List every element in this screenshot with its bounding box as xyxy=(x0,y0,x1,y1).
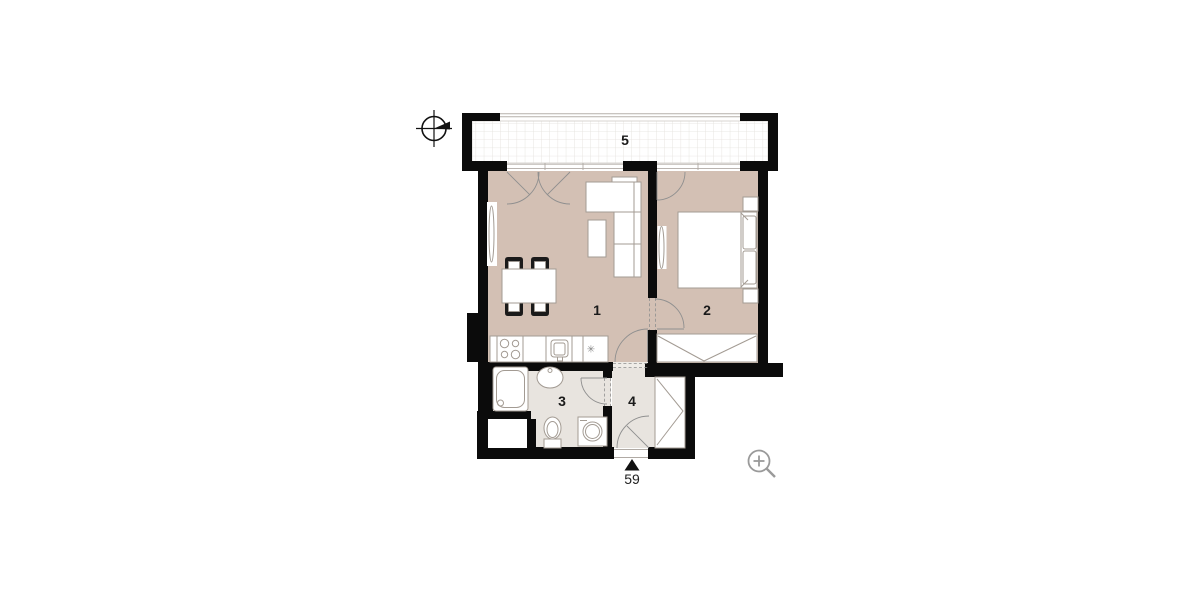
kitchen-appliance-symbol: ✳ xyxy=(587,345,595,356)
wall-segment xyxy=(527,419,536,448)
floor-plan-canvas: ✳ xyxy=(0,0,1200,600)
balcony-tile-grid xyxy=(472,121,768,163)
dining-table xyxy=(502,269,556,303)
wall-segment xyxy=(603,371,612,378)
entry-threshold xyxy=(614,448,648,459)
room-label-bedroom: 2 xyxy=(703,302,711,318)
unit-number: 59 xyxy=(624,471,640,487)
wall-segment xyxy=(648,171,657,298)
hallway-threshold xyxy=(613,362,648,369)
wall-segment xyxy=(758,166,768,363)
toilet xyxy=(544,417,561,439)
toilet-tank xyxy=(544,439,561,448)
nightstand xyxy=(743,289,758,303)
wall-segment xyxy=(645,363,783,377)
sofa-cushion xyxy=(612,177,637,182)
room-label-bathroom: 3 xyxy=(558,393,566,409)
wall-segment xyxy=(462,113,500,121)
radiator xyxy=(659,227,664,269)
pillow xyxy=(743,251,756,284)
dining-chair xyxy=(505,302,523,316)
hallway-closet xyxy=(655,377,685,448)
wall-segment xyxy=(685,377,695,459)
entrance-marker: 59 xyxy=(624,459,640,487)
nightstand xyxy=(743,197,758,211)
radiator xyxy=(489,206,494,262)
shaft-niche xyxy=(488,419,527,448)
pillow xyxy=(743,216,756,249)
zoom-in-icon[interactable] xyxy=(749,451,776,478)
coffee-table xyxy=(588,220,606,257)
room-label-living: 1 xyxy=(593,302,601,318)
entrance-arrow-icon xyxy=(625,459,640,471)
compass-north-icon xyxy=(416,110,452,147)
wall-segment xyxy=(477,447,614,459)
wall-segment xyxy=(481,411,531,419)
room-label-hallway: 4 xyxy=(628,393,636,409)
room-label-balcony: 5 xyxy=(621,132,629,148)
wall-segment xyxy=(462,161,507,171)
wall-segment xyxy=(623,161,657,171)
kitchen: ✳ xyxy=(490,336,608,362)
wall-segment xyxy=(478,362,493,419)
washing-machine xyxy=(578,417,607,446)
balcony xyxy=(472,114,768,163)
washbasin xyxy=(537,367,563,388)
hall-wardrobe xyxy=(655,377,685,448)
floor-plan-page: ✳ xyxy=(0,0,1200,600)
dining-chair xyxy=(531,302,549,316)
wall-segment xyxy=(467,313,481,362)
wardrobe xyxy=(657,334,757,362)
sofa-back-section xyxy=(586,182,641,212)
